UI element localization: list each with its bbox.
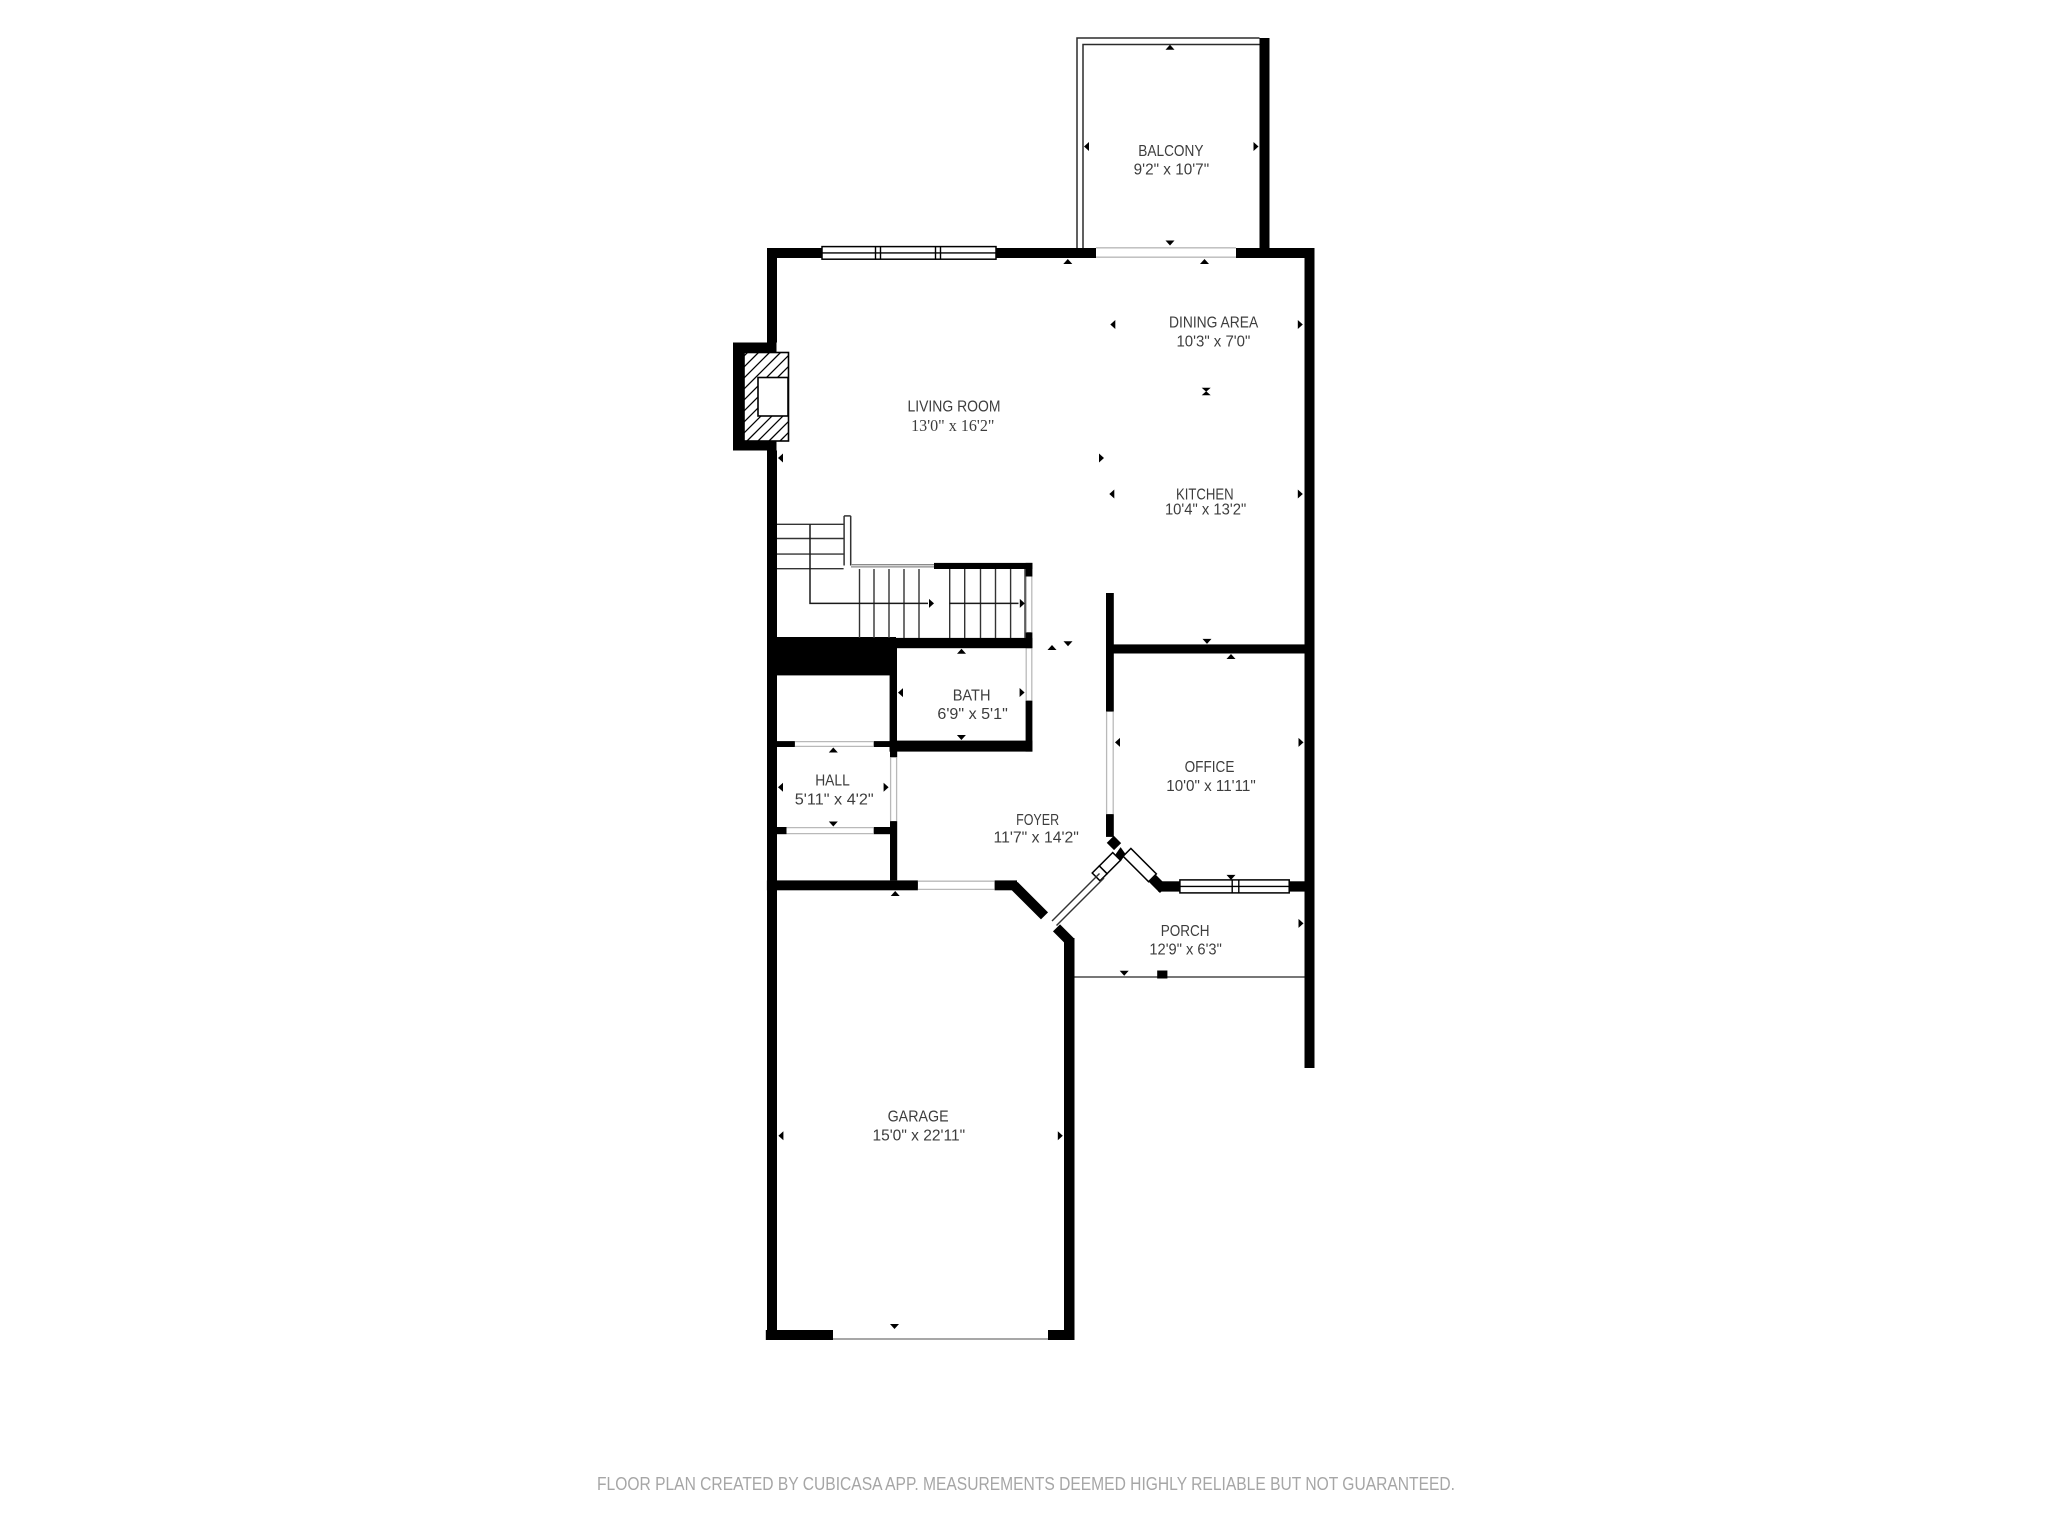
svg-text:9'2" x 10'7": 9'2" x 10'7" xyxy=(1134,161,1210,178)
svg-text:15'0" x 22'11": 15'0" x 22'11" xyxy=(872,1127,965,1144)
svg-text:HALL: HALL xyxy=(815,773,850,790)
svg-text:LIVING ROOM: LIVING ROOM xyxy=(908,399,1001,416)
svg-text:BATH: BATH xyxy=(953,688,991,705)
svg-text:PORCH: PORCH xyxy=(1161,923,1210,940)
svg-text:6'9" x 5'1": 6'9" x 5'1" xyxy=(937,706,1007,723)
svg-text:13'0" x 16'2": 13'0" x 16'2" xyxy=(911,416,994,435)
svg-text:11'7" x 14'2": 11'7" x 14'2" xyxy=(994,830,1079,847)
svg-text:12'9" x 6'3": 12'9" x 6'3" xyxy=(1149,942,1221,959)
svg-text:10'4" x 13'2": 10'4" x 13'2" xyxy=(1165,502,1246,519)
svg-text:DINING AREA: DINING AREA xyxy=(1169,315,1258,332)
svg-text:10'0" x 11'11": 10'0" x 11'11" xyxy=(1166,778,1256,795)
svg-text:FOYER: FOYER xyxy=(1016,812,1059,829)
svg-text:10'3" x 7'0": 10'3" x 7'0" xyxy=(1176,334,1250,351)
svg-text:FLOOR PLAN CREATED BY CUBICASA: FLOOR PLAN CREATED BY CUBICASA APP. MEAS… xyxy=(597,1474,1455,1494)
svg-text:BALCONY: BALCONY xyxy=(1138,143,1203,160)
svg-text:OFFICE: OFFICE xyxy=(1185,759,1235,776)
svg-text:5'11" x 4'2": 5'11" x 4'2" xyxy=(795,791,874,808)
svg-text:GARAGE: GARAGE xyxy=(888,1109,949,1126)
